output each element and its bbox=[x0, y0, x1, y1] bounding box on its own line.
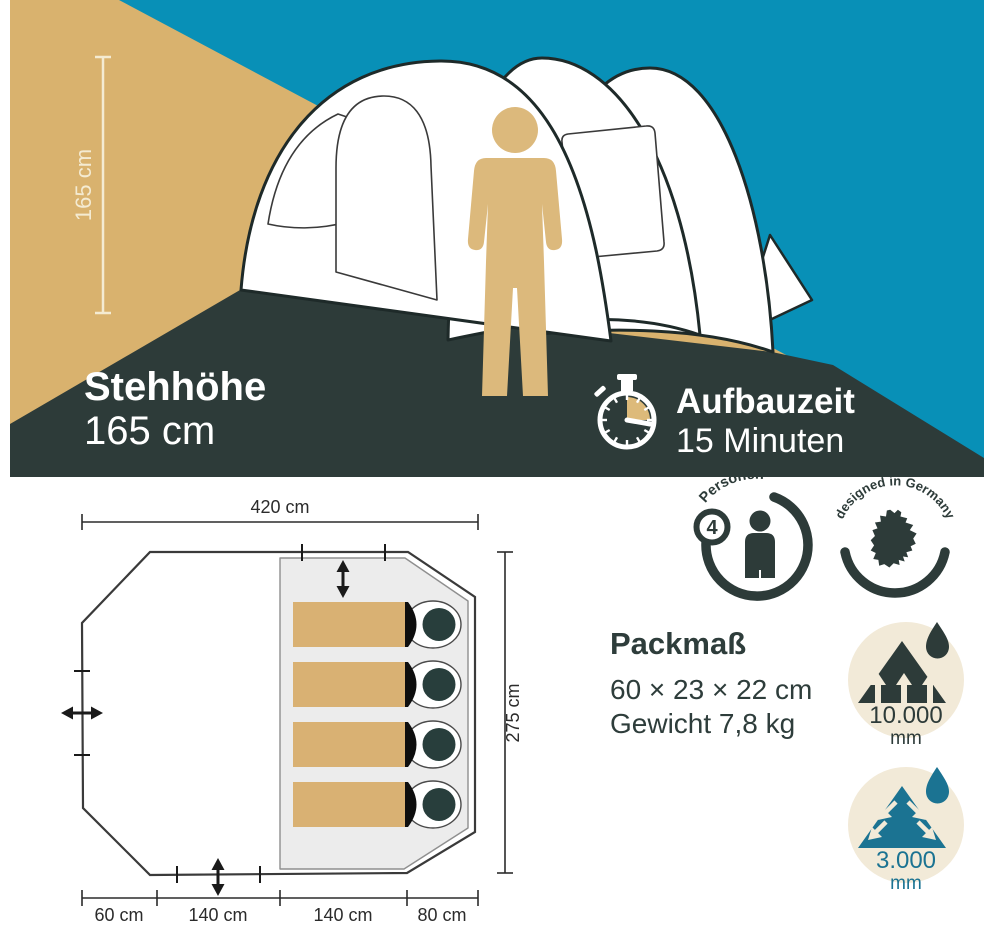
persons-count: 4 bbox=[706, 517, 718, 539]
person-icon bbox=[750, 511, 771, 532]
pack-size-dimensions: 60 × 23 × 22 cm bbox=[610, 674, 812, 705]
sleeping-mat bbox=[293, 721, 461, 768]
standing-height-value: 165 cm bbox=[84, 409, 215, 453]
standing-height-label: Stehhöhe bbox=[84, 365, 266, 409]
waterproof-tent-badge: 10.000 mm bbox=[848, 622, 964, 749]
waterproof-tent-unit: mm bbox=[890, 728, 922, 749]
sleeping-mat bbox=[293, 781, 461, 828]
segment-label: 140 cm bbox=[313, 905, 372, 925]
pack-size-title: Packmaß bbox=[610, 626, 746, 661]
total-width-label: 420 cm bbox=[250, 497, 309, 517]
persons-badge: 4 Personen bbox=[696, 477, 808, 596]
height-measure-label: 165 cm bbox=[71, 149, 96, 221]
setup-time-label: Aufbauzeit bbox=[676, 382, 855, 421]
rain-arrows bbox=[870, 673, 938, 703]
waterproof-floor-badge: 3.000 mm bbox=[848, 767, 964, 894]
total-depth-label: 275 cm bbox=[503, 683, 523, 742]
waterproof-floor-unit: mm bbox=[890, 873, 922, 894]
waterproof-floor-value: 3.000 bbox=[876, 847, 936, 874]
floor-plan-section: 420 cm 275 cm 60 cm 140 cm 140 cm 80 cm … bbox=[0, 477, 984, 936]
persons-curved-label: Personen bbox=[696, 477, 764, 506]
segment-label: 140 cm bbox=[188, 905, 247, 925]
pack-size-weight: Gewicht 7,8 kg bbox=[610, 708, 795, 739]
top-scene: 165 cm Stehhöhe 165 cm Aufbauzeit 15 Min… bbox=[0, 0, 984, 477]
waterproof-tent-value: 10.000 bbox=[869, 702, 942, 729]
tent-infographic: 165 cm Stehhöhe 165 cm Aufbauzeit 15 Min… bbox=[0, 0, 984, 936]
segment-label: 80 cm bbox=[417, 905, 466, 925]
person-head bbox=[492, 107, 538, 153]
tent-door bbox=[336, 96, 437, 300]
sleeping-mat bbox=[293, 661, 461, 708]
segment-label: 60 cm bbox=[94, 905, 143, 925]
setup-time-value: 15 Minuten bbox=[676, 422, 844, 460]
designed-in-germany-badge: designed in Germany bbox=[832, 477, 959, 593]
sleeping-mat bbox=[293, 601, 461, 648]
germany-map-icon bbox=[871, 510, 917, 568]
